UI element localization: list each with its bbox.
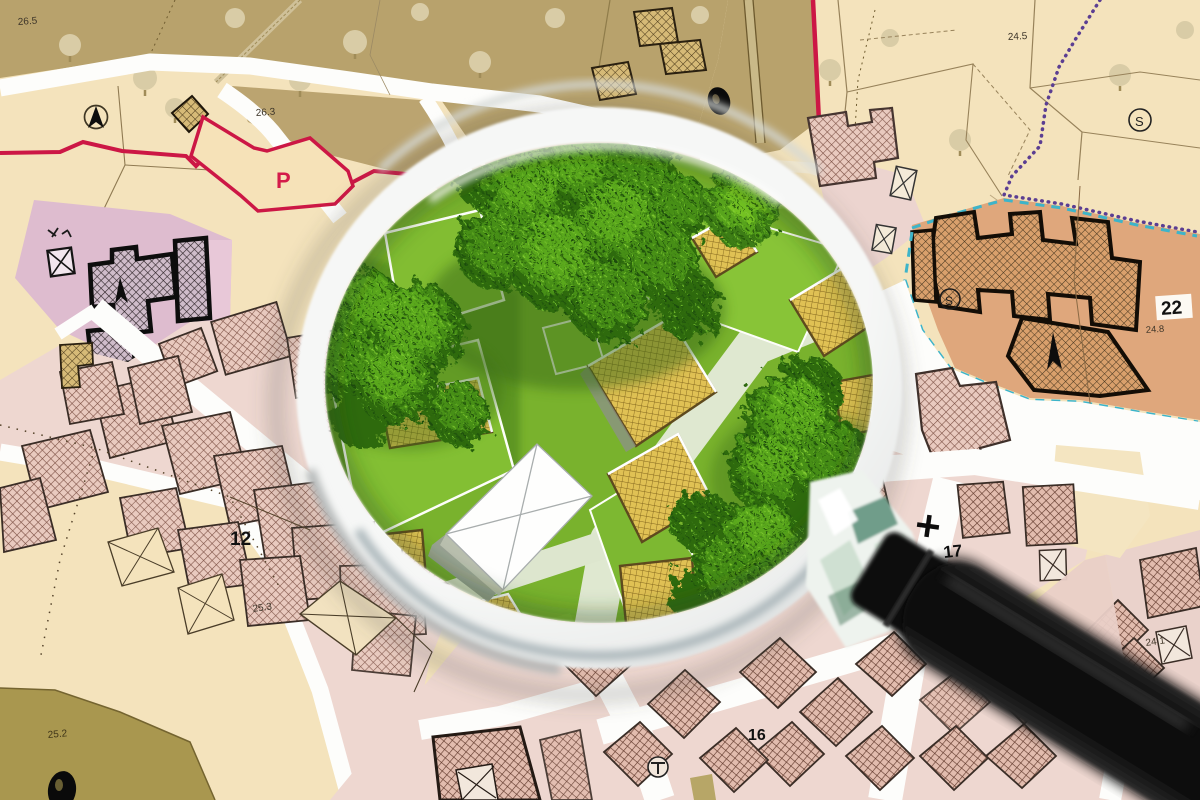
svg-text:22: 22 [1160, 297, 1183, 319]
svg-text:S: S [945, 294, 953, 308]
svg-text:16: 16 [748, 727, 766, 744]
svg-text:26.5: 26.5 [17, 16, 38, 28]
svg-text:26.3: 26.3 [255, 107, 276, 119]
svg-text:12: 12 [230, 529, 251, 550]
svg-text:24.5: 24.5 [1008, 31, 1028, 43]
svg-text:P: P [276, 168, 291, 193]
svg-text:24.8: 24.8 [1145, 324, 1164, 336]
svg-text:S: S [1135, 114, 1144, 129]
svg-text:25.2: 25.2 [47, 728, 68, 741]
